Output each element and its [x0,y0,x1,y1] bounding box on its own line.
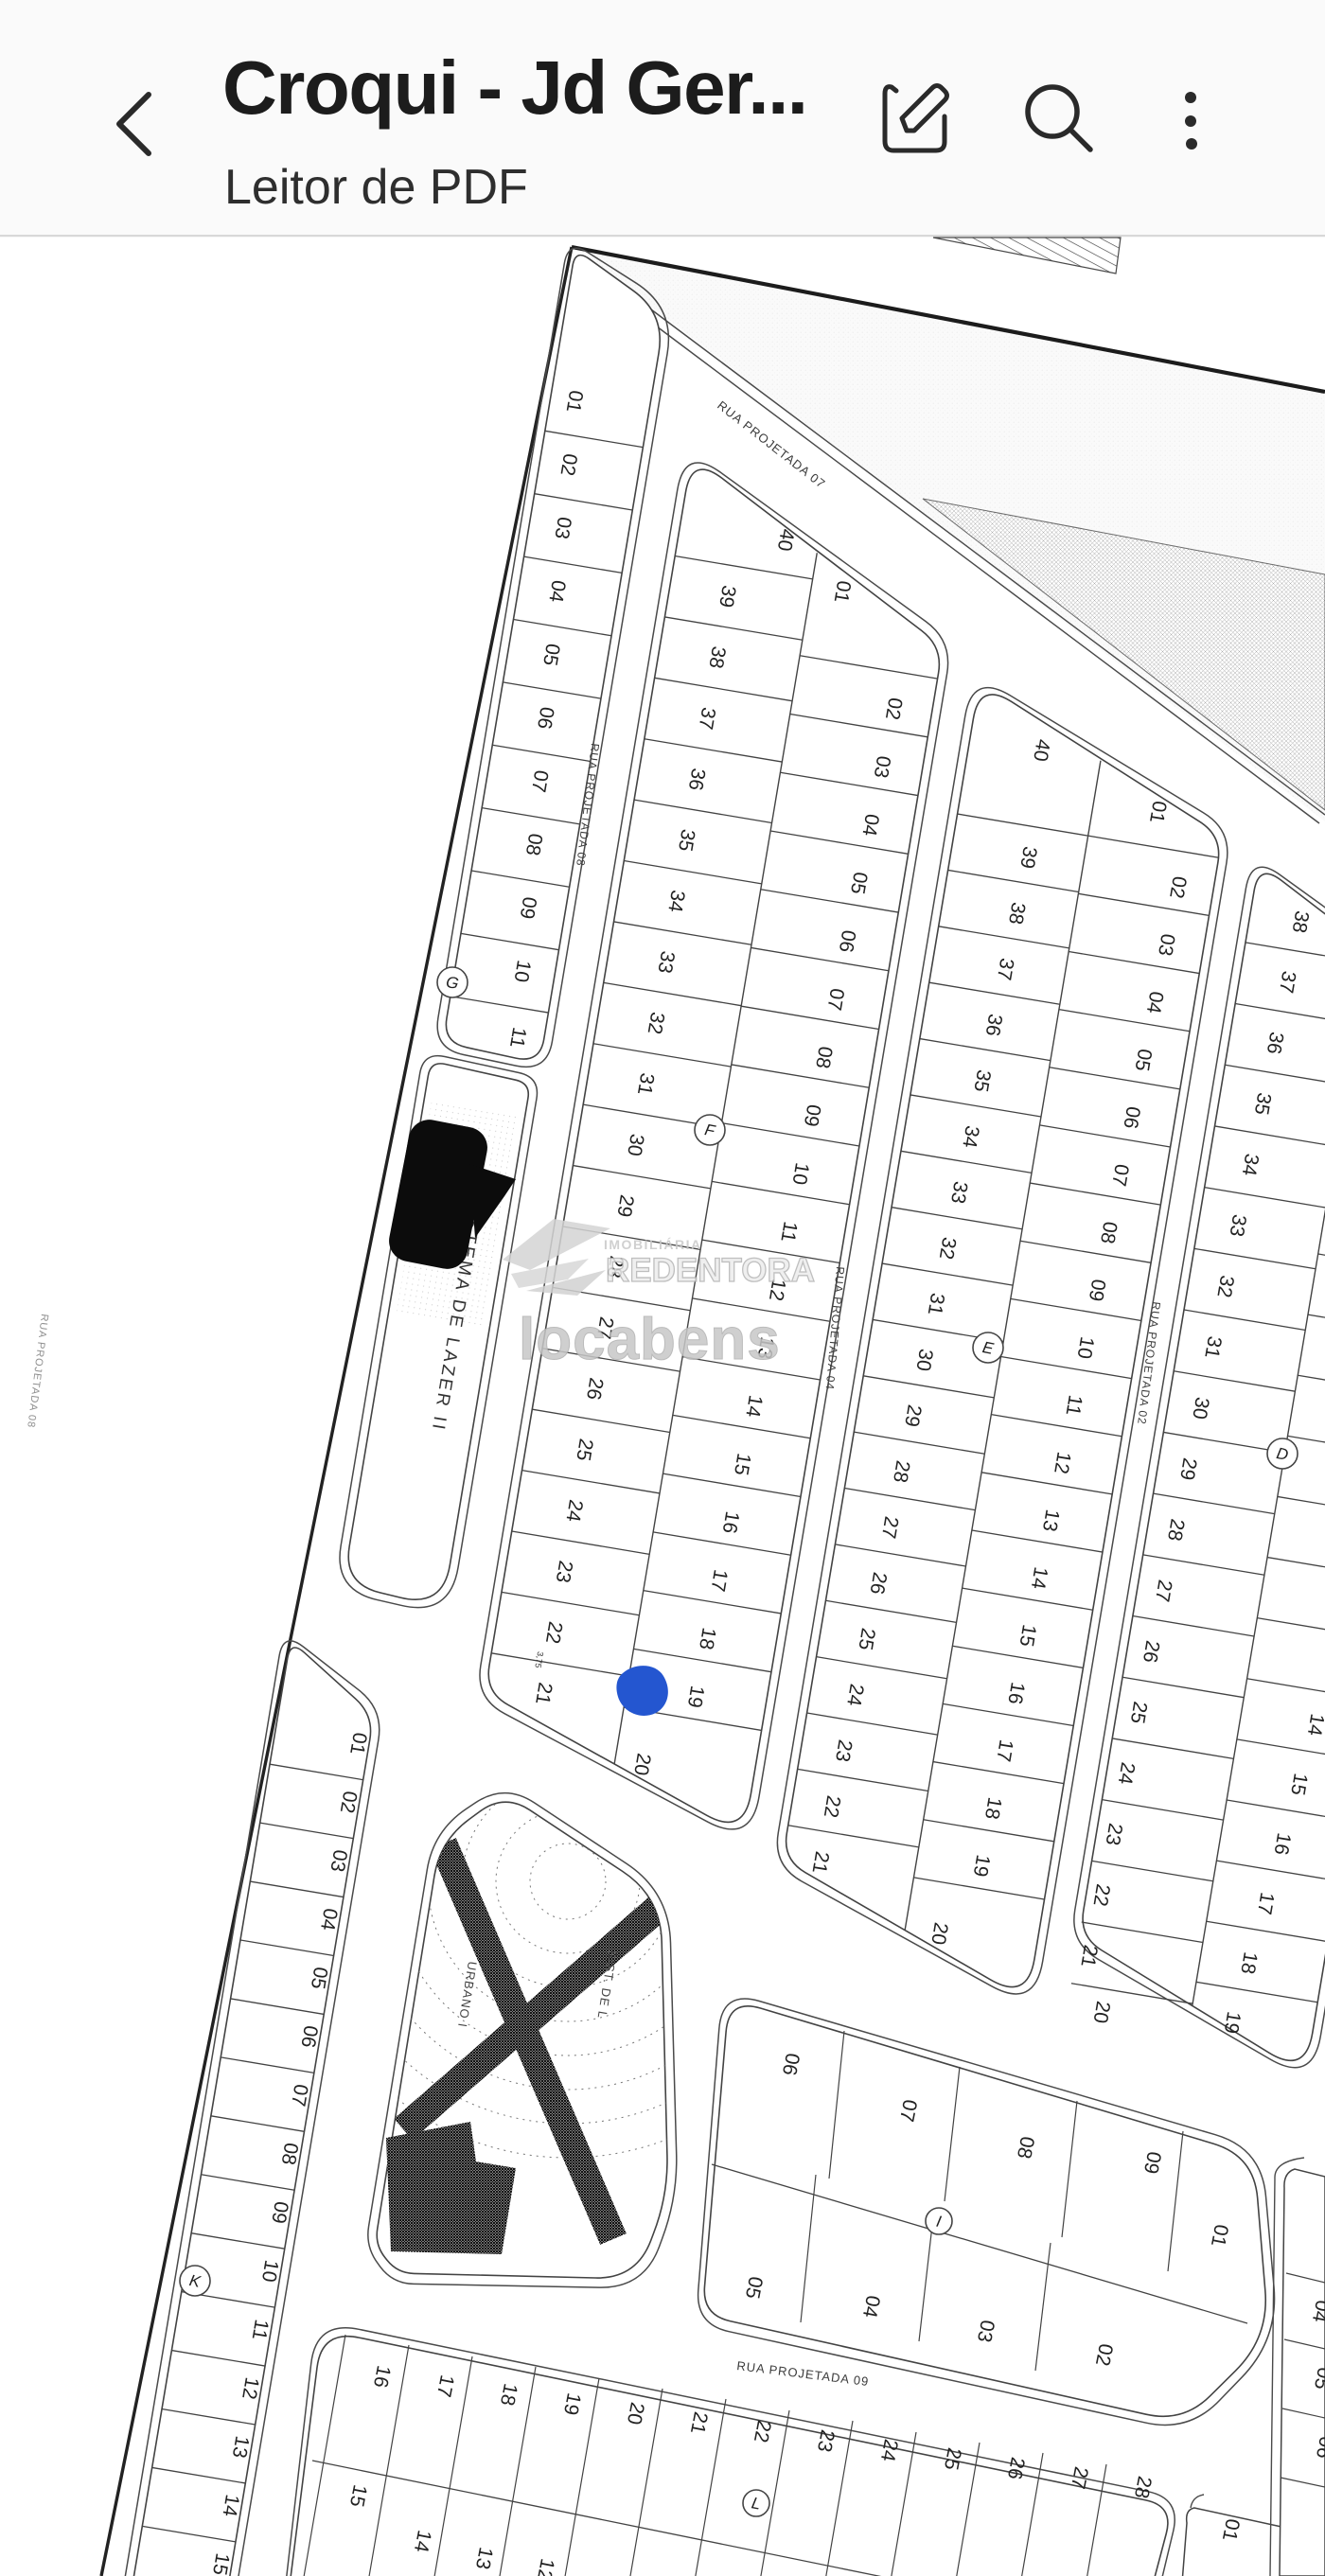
svg-text:11: 11 [505,1026,530,1050]
svg-text:16: 16 [1270,1831,1296,1857]
svg-text:09: 09 [516,895,541,921]
svg-text:03: 03 [326,1848,351,1874]
svg-text:22: 22 [750,2419,775,2444]
svg-text:02: 02 [336,1790,362,1815]
svg-text:20: 20 [927,1921,952,1947]
svg-text:15: 15 [1286,1772,1312,1797]
svg-text:10: 10 [788,1161,814,1187]
svg-text:30: 30 [911,1348,937,1373]
svg-text:locabens: locabens [519,1307,781,1372]
svg-text:25: 25 [940,2446,965,2472]
svg-text:16: 16 [369,2364,395,2390]
svg-text:17: 17 [706,1568,732,1594]
svg-text:15: 15 [208,2551,234,2576]
svg-text:20: 20 [623,2401,648,2426]
svg-text:38: 38 [1288,909,1314,935]
svg-text:31: 31 [924,1292,949,1317]
svg-text:22: 22 [820,1794,845,1820]
svg-text:39: 39 [715,584,740,609]
svg-text:01: 01 [830,579,856,605]
svg-text:25: 25 [854,1627,879,1652]
svg-text:03: 03 [1154,932,1179,958]
svg-text:01: 01 [562,389,588,415]
svg-text:06: 06 [533,705,558,731]
svg-text:22: 22 [541,1620,567,1646]
svg-text:37: 37 [695,706,720,732]
svg-text:RUA PROJETADA 09: RUA PROJETADA 09 [736,2358,871,2389]
svg-text:30: 30 [1188,1396,1213,1421]
svg-text:25: 25 [1126,1700,1152,1725]
svg-text:18: 18 [695,1626,720,1651]
svg-text:39: 39 [1016,845,1041,871]
svg-text:18: 18 [1236,1950,1262,1976]
svg-text:27: 27 [877,1515,903,1541]
svg-text:30: 30 [623,1132,648,1157]
svg-text:28: 28 [1163,1517,1189,1543]
svg-text:13: 13 [471,2546,497,2571]
svg-text:20: 20 [1089,2000,1115,2025]
svg-text:06: 06 [778,2052,804,2077]
svg-text:34: 34 [958,1124,983,1150]
svg-text:07: 07 [895,2098,921,2124]
svg-text:07: 07 [287,2083,312,2108]
svg-text:12: 12 [1050,1450,1075,1475]
svg-text:04: 04 [544,578,570,604]
svg-text:33: 33 [946,1180,972,1206]
svg-text:21: 21 [531,1681,556,1706]
svg-text:23: 23 [813,2428,839,2454]
svg-text:09: 09 [1139,2150,1165,2176]
svg-text:10: 10 [509,959,535,984]
svg-text:IMOBILIÁRIA: IMOBILIÁRIA [604,1237,702,1252]
svg-text:06: 06 [835,928,860,954]
svg-text:04: 04 [316,1907,342,1932]
svg-text:38: 38 [704,644,730,670]
svg-text:23: 23 [831,1738,857,1764]
svg-text:03: 03 [550,515,575,540]
svg-text:02: 02 [881,696,907,721]
svg-text:17: 17 [433,2373,458,2399]
svg-text:07: 07 [822,987,848,1013]
svg-text:03: 03 [870,754,895,780]
svg-text:26: 26 [1139,1639,1164,1665]
svg-text:32: 32 [644,1011,669,1036]
svg-text:12: 12 [238,2375,263,2401]
svg-text:05: 05 [741,2275,767,2301]
svg-text:RUA PROJETADA 08: RUA PROJETADA 08 [25,1314,50,1429]
svg-text:05: 05 [1131,1048,1157,1073]
svg-text:07: 07 [1107,1162,1133,1188]
svg-text:07: 07 [527,768,553,794]
svg-text:26: 26 [866,1571,892,1597]
svg-text:24: 24 [561,1498,587,1524]
svg-text:35: 35 [969,1068,995,1094]
svg-text:31: 31 [633,1071,659,1097]
svg-text:04: 04 [857,812,883,838]
svg-text:21: 21 [686,2410,712,2436]
svg-text:27: 27 [1151,1578,1176,1603]
svg-text:Leitor de PDF: Leitor de PDF [224,160,528,215]
svg-text:08: 08 [1096,1220,1122,1245]
svg-text:18: 18 [980,1795,1006,1821]
svg-text:06: 06 [1119,1104,1144,1130]
svg-text:25: 25 [572,1437,597,1462]
svg-text:11: 11 [1061,1393,1086,1417]
svg-text:14: 14 [218,2493,243,2518]
svg-text:36: 36 [684,767,710,792]
svg-text:15: 15 [345,2483,371,2509]
svg-text:15: 15 [1016,1623,1041,1649]
svg-text:33: 33 [653,949,679,975]
svg-text:28: 28 [889,1459,914,1485]
svg-text:13: 13 [228,2434,254,2460]
svg-text:31: 31 [1200,1334,1226,1360]
svg-text:36: 36 [981,1013,1007,1038]
svg-text:01: 01 [1207,2223,1232,2249]
svg-text:17: 17 [1253,1891,1279,1916]
svg-text:37: 37 [993,957,1018,982]
svg-text:24: 24 [876,2438,902,2464]
svg-text:23: 23 [552,1559,577,1584]
svg-text:05: 05 [539,642,564,667]
svg-text:24: 24 [842,1683,868,1708]
svg-text:01: 01 [1145,800,1171,825]
svg-text:09: 09 [1085,1278,1110,1303]
svg-text:35: 35 [674,827,699,853]
svg-text:19: 19 [683,1684,709,1709]
svg-text:28: 28 [1130,2475,1156,2500]
svg-text:02: 02 [556,452,582,478]
svg-text:08: 08 [521,832,547,857]
svg-text:40: 40 [773,527,799,553]
svg-text:29: 29 [900,1403,926,1429]
svg-text:04: 04 [1142,990,1168,1015]
svg-text:23: 23 [1102,1822,1127,1847]
svg-text:18: 18 [496,2382,521,2408]
svg-text:02: 02 [1165,874,1191,900]
svg-text:REDENTORA: REDENTORA [606,1252,815,1289]
svg-text:29: 29 [1175,1456,1201,1482]
svg-text:19: 19 [969,1853,995,1879]
svg-text:32: 32 [935,1236,961,1262]
svg-text:16: 16 [718,1509,744,1535]
svg-text:08: 08 [277,2141,303,2166]
svg-text:09: 09 [800,1103,825,1128]
svg-text:10: 10 [257,2258,283,2284]
svg-text:21: 21 [808,1850,834,1876]
svg-text:11: 11 [248,2318,273,2341]
svg-text:04: 04 [858,2294,884,2320]
svg-text:33: 33 [1226,1213,1251,1239]
svg-text:14: 14 [410,2529,435,2555]
svg-text:08: 08 [811,1045,837,1070]
svg-text:32: 32 [1212,1274,1238,1299]
svg-text:Croqui - Jd Ger...: Croqui - Jd Ger... [222,45,807,130]
svg-text:19: 19 [1220,2010,1245,2036]
svg-text:11: 11 [776,1220,801,1244]
svg-text:35: 35 [1250,1091,1276,1117]
svg-text:01: 01 [1218,2517,1244,2543]
svg-text:16: 16 [1003,1681,1029,1706]
svg-text:22: 22 [1088,1882,1114,1908]
svg-text:14: 14 [1027,1565,1052,1591]
svg-text:12: 12 [533,2557,558,2576]
svg-text:13: 13 [1038,1508,1064,1533]
svg-text:05: 05 [307,1966,332,1991]
svg-text:14: 14 [741,1393,767,1419]
svg-text:05: 05 [846,871,872,896]
svg-text:29: 29 [612,1193,638,1219]
svg-text:06: 06 [296,2024,322,2050]
svg-text:08: 08 [1013,2135,1038,2161]
svg-text:36: 36 [1263,1031,1288,1056]
svg-text:26: 26 [1003,2456,1029,2481]
svg-text:40: 40 [1029,737,1054,763]
svg-text:10: 10 [1073,1335,1099,1361]
svg-text:17: 17 [992,1738,1017,1763]
svg-text:01: 01 [345,1731,371,1756]
svg-text:34: 34 [1238,1152,1263,1177]
svg-text:38: 38 [1004,901,1030,926]
svg-text:03: 03 [973,2319,998,2344]
svg-text:19: 19 [559,2391,585,2417]
svg-text:20: 20 [629,1752,655,1777]
svg-text:09: 09 [267,2199,292,2225]
svg-text:27: 27 [1067,2465,1092,2491]
svg-text:14: 14 [1303,1712,1325,1738]
svg-text:26: 26 [582,1376,608,1402]
svg-text:37: 37 [1275,969,1300,995]
svg-text:02: 02 [1091,2342,1117,2368]
svg-text:15: 15 [730,1452,755,1477]
svg-text:21: 21 [1076,1943,1102,1968]
svg-text:34: 34 [663,889,689,914]
svg-text:24: 24 [1114,1760,1139,1786]
